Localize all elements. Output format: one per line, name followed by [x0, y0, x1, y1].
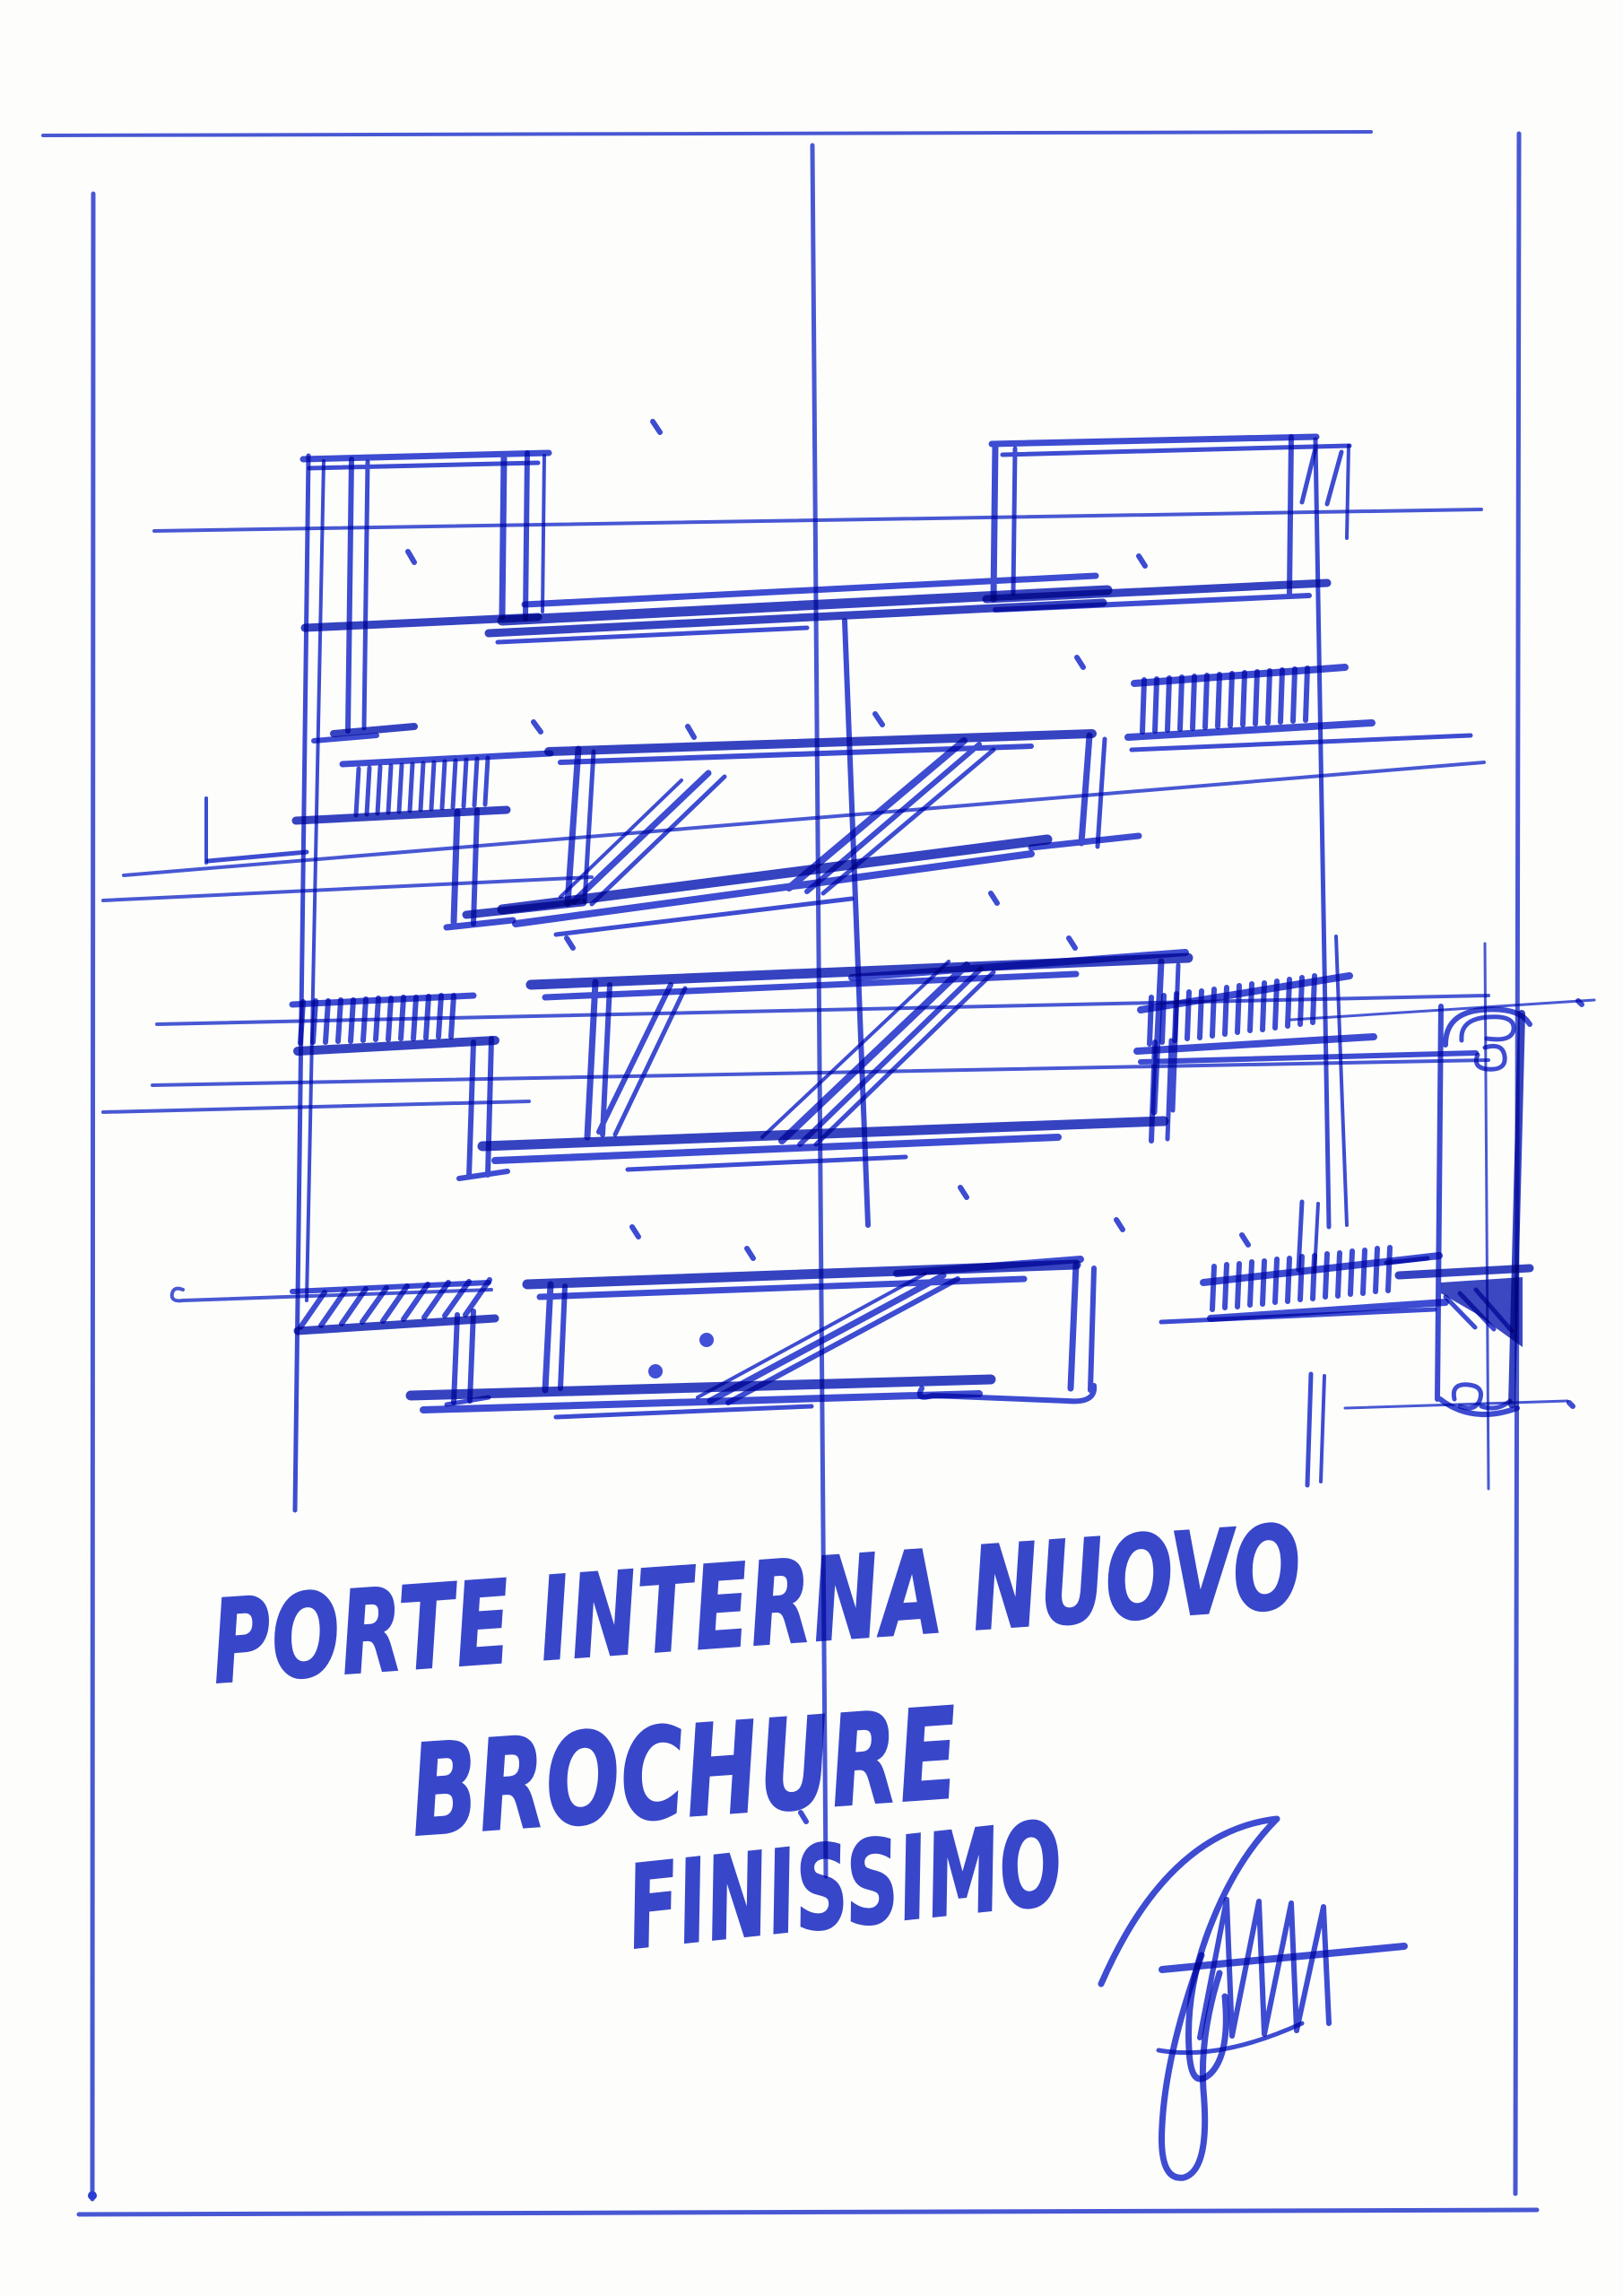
detail-filled-wedge [1441, 1277, 1523, 1347]
row-b-heavy-corners [296, 810, 583, 915]
guide-row-c-short [103, 1101, 529, 1112]
row-d-light-strokes [447, 1202, 1435, 1485]
dot-mark [648, 1364, 663, 1378]
caption-line-1: PORTE INTERNA NUOVO [208, 1500, 1306, 1710]
section-row-d [292, 1202, 1445, 1485]
signature-scribble-icon [1101, 1819, 1404, 2178]
row-b-left-hatch [356, 758, 488, 815]
row-b-edges [343, 735, 1139, 927]
dot-mark [699, 1333, 714, 1347]
detail-right-edge [1512, 1013, 1522, 1405]
section-row-b [206, 667, 1471, 935]
guide-row-b-short [103, 877, 592, 900]
row-d-faint-strokes [698, 1204, 1324, 1482]
signature-zigzag [1200, 1900, 1329, 2038]
bottom-border-line [79, 2210, 1537, 2214]
row-c-edges [292, 961, 1161, 1137]
row-b-double-strokes [473, 744, 1031, 924]
section-row-c [292, 952, 1476, 1178]
detail-band [1399, 1268, 1530, 1275]
row-c-right-hatch [1150, 976, 1315, 1044]
sketch-page: PORTE INTERNA NUOVO BROCHURE FINISSIMO [0, 0, 1623, 2296]
row-d-panel-heavy [411, 1265, 1076, 1396]
row-b-light-strokes [208, 735, 1471, 935]
row-d-right-hatch [1212, 1248, 1390, 1309]
left-border-line [92, 194, 93, 2199]
top-border-line [43, 132, 1371, 135]
border-end-blob [88, 2191, 97, 2200]
door-section-sketch: PORTE INTERNA NUOVO BROCHURE FINISSIMO [0, 0, 1623, 2296]
